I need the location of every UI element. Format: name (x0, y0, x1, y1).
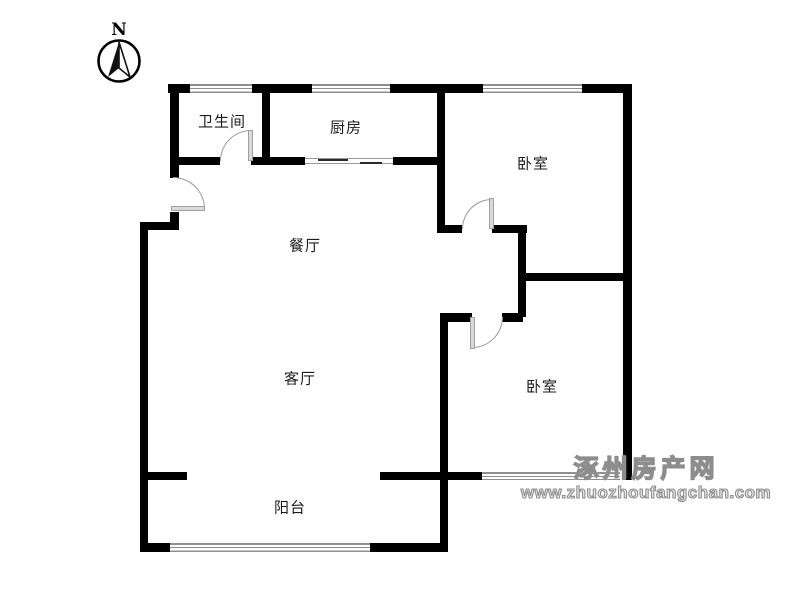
north-arrow-icon (119, 42, 130, 77)
wall-bath-kitchen (262, 84, 270, 165)
wall-bath-bottom-1 (170, 157, 220, 165)
wall-bedrooms-divider (518, 273, 632, 281)
sliding-door-kitchen-panel-2 (360, 162, 382, 164)
wall-balcony-stub-right (380, 472, 482, 480)
door-bedroom1-arc (462, 199, 492, 229)
watermark: 涿州房产网 www.zhuozhoufangchan.com (518, 456, 774, 502)
north-compass: N (95, 20, 143, 88)
door-bedroom2-leaf (470, 317, 475, 349)
room-label-bathroom: 卫生间 (198, 111, 246, 132)
door-bedroom1-leaf (489, 198, 494, 229)
room-label-dining: 餐厅 (289, 235, 321, 256)
wall-balcony-bottom-2 (370, 543, 448, 552)
wall-right-outer (623, 84, 632, 480)
wall-balcony-stub-left (148, 472, 187, 480)
door-entrance-leaf (171, 206, 205, 211)
sliding-door-kitchen (305, 158, 393, 164)
sliding-door-kitchen-panel-1 (318, 159, 348, 161)
wall-top-2 (252, 84, 312, 93)
room-label-balcony: 阳台 (274, 497, 306, 518)
watermark-site-name: 涿州房产网 (518, 456, 774, 482)
room-label-kitchen: 厨房 (330, 117, 362, 138)
window-bathroom (190, 84, 252, 93)
watermark-site-url: www.zhuozhoufangchan.com (518, 484, 774, 502)
room-label-bedroom-2: 卧室 (526, 376, 558, 397)
wall-bedroom2-top-2 (502, 313, 523, 322)
room-label-bedroom-1: 卧室 (517, 153, 549, 174)
wall-bath-bottom-2 (251, 157, 305, 165)
north-label: N (111, 20, 127, 40)
window-balcony (170, 543, 370, 552)
wall-bedroom1-bottom-1 (437, 225, 462, 233)
door-bathroom-arc (220, 130, 251, 161)
door-bathroom-leaf (248, 130, 253, 161)
wall-living-east (440, 313, 448, 552)
door-entrance-arc (173, 177, 205, 209)
wall-balcony-bottom-1 (140, 543, 170, 552)
window-bedroom1 (483, 84, 582, 93)
wall-hall-east (518, 225, 526, 317)
room-label-living: 客厅 (284, 368, 316, 389)
wall-kitchen-bottom (393, 157, 445, 165)
north-arrow-icon (108, 42, 119, 77)
door-bedroom2-arc (472, 317, 503, 348)
wall-left-outer (140, 222, 148, 552)
floor-plan: N 涿州房产网 www.zhuozhoufangchan.com 卫生间厨房卧室… (0, 0, 800, 600)
window-kitchen (312, 84, 390, 93)
